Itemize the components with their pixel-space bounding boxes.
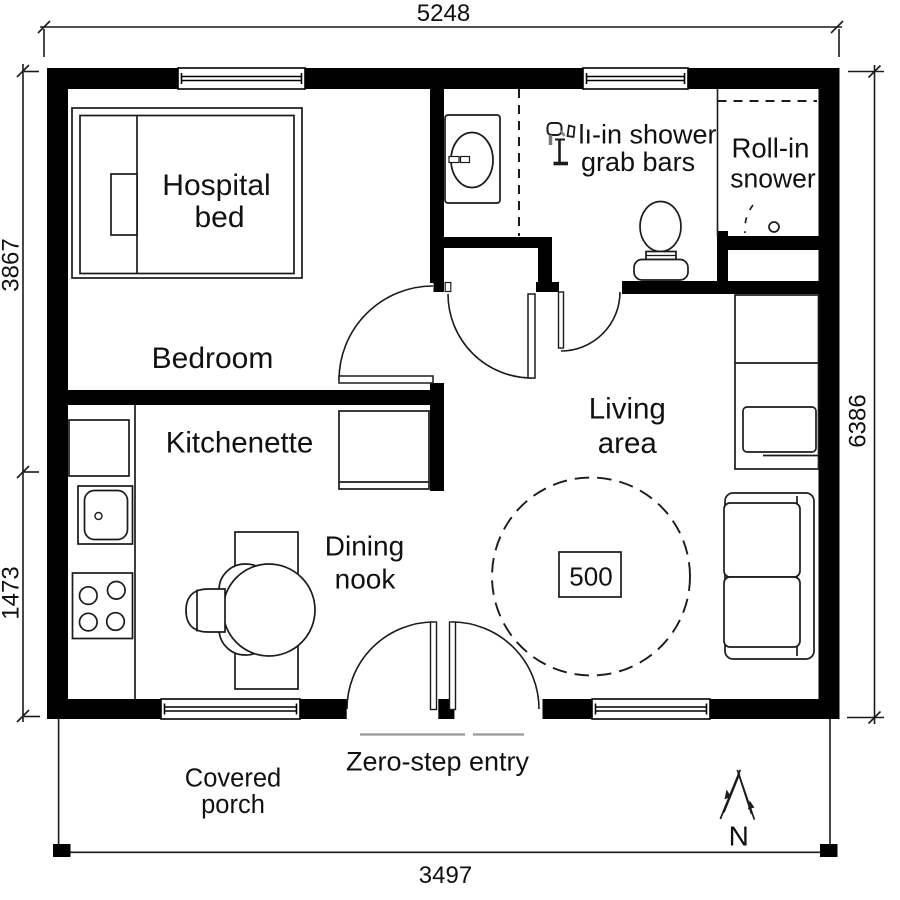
svg-text:Zero-step entry: Zero-step entry [346, 747, 530, 777]
svg-text:Dining: Dining [325, 531, 404, 562]
svg-text:bed: bed [194, 201, 244, 234]
svg-text:Roll-in: Roll-in [732, 133, 810, 164]
svg-text:Covered: Covered [185, 765, 281, 793]
svg-text:snower: snower [730, 164, 816, 194]
svg-text:Bedroom: Bedroom [152, 342, 274, 375]
svg-text:500: 500 [569, 562, 612, 592]
svg-text:Kitchenette: Kitchenette [166, 427, 314, 460]
svg-text:3867: 3867 [0, 238, 25, 291]
svg-text:5248: 5248 [417, 0, 470, 27]
svg-text:lı-in shower: lı-in shower [579, 120, 717, 150]
svg-text:1473: 1473 [0, 566, 25, 619]
svg-text:N: N [729, 820, 749, 851]
svg-text:nook: nook [335, 564, 397, 595]
svg-text:area: area [598, 427, 658, 460]
svg-text:Living: Living [589, 393, 666, 426]
svg-text:porch: porch [201, 791, 265, 819]
svg-text:6386: 6386 [845, 394, 872, 447]
svg-text:Hospital: Hospital [162, 169, 270, 202]
svg-text:grab bars: grab bars [581, 147, 695, 177]
svg-text:3497: 3497 [419, 862, 472, 889]
